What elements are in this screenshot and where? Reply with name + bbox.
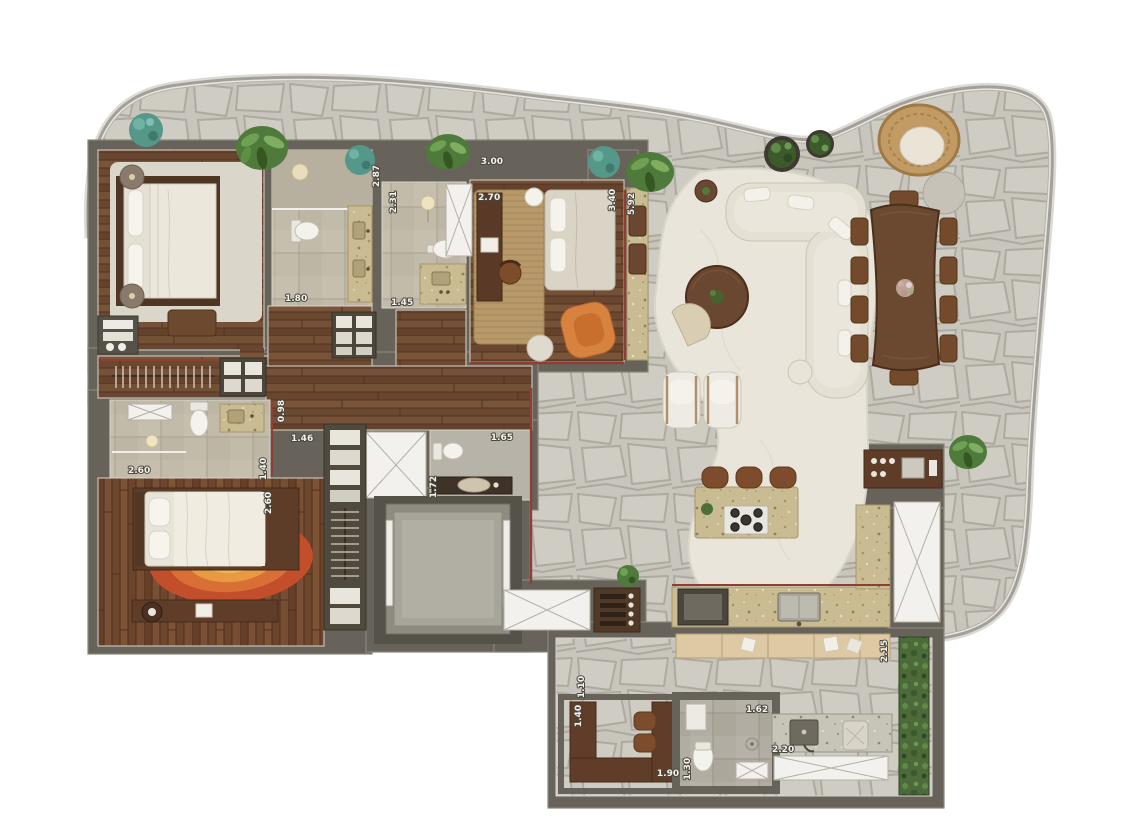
stone-sink-counter <box>432 477 512 494</box>
potted-plant <box>236 126 288 170</box>
double-sink <box>778 593 820 626</box>
pillow <box>128 244 143 290</box>
dim-suite2-bath-w: 2.60 <box>128 466 150 476</box>
coffee-cabinet <box>864 450 942 488</box>
dim-laundry-w: 2.20 <box>772 745 794 755</box>
folded-towel <box>823 636 839 652</box>
dim-living-d: 5.92 <box>627 193 637 215</box>
potted-plant <box>345 145 375 175</box>
floor-plan-stage: 3.00 1.80 2.87 2.31 1.45 2.70 3.40 5.92 … <box>0 0 1132 834</box>
dim-suite2-d: 2.60 <box>264 492 274 514</box>
dim-suite2-bath-d: 1.40 <box>259 458 269 480</box>
potted-plant <box>764 136 800 172</box>
potted-plant <box>806 130 834 158</box>
bar-stools <box>702 467 796 488</box>
hall-cabinet <box>366 432 426 498</box>
wine-rack <box>594 588 640 632</box>
elevator <box>374 496 522 644</box>
daybed <box>545 190 615 290</box>
round-stone-table <box>923 172 965 214</box>
service-upper-cabinets <box>676 634 890 658</box>
toilet <box>693 742 713 771</box>
round-pouf <box>527 335 553 361</box>
dim-den-d: 3.40 <box>608 189 618 211</box>
toilet <box>433 443 463 460</box>
elevator-door-rail <box>386 520 393 606</box>
single-bed <box>133 488 299 570</box>
potted-plant <box>426 134 470 170</box>
potted-plant <box>588 146 620 178</box>
folded-towel <box>740 637 756 653</box>
dim-den-w: 2.70 <box>478 193 500 203</box>
lounge-chair <box>704 372 741 428</box>
pendant-light <box>146 435 158 447</box>
shoe-cubbies <box>332 312 376 358</box>
foot-bench <box>168 310 216 336</box>
pillow <box>838 280 851 306</box>
floor-lamp <box>525 188 543 206</box>
skylight-panel <box>128 404 172 420</box>
toilet <box>190 402 208 436</box>
pillow <box>743 187 770 203</box>
stool <box>634 734 656 752</box>
pillow <box>128 190 143 236</box>
dim-powder-d: 1.72 <box>429 476 439 498</box>
dim-hall-niche: 0.98 <box>277 400 287 422</box>
washer-dryer-panel <box>774 756 888 780</box>
pendant-light <box>421 196 435 210</box>
wall-shelf <box>686 704 706 730</box>
dim-green-wall: 2.15 <box>880 640 890 662</box>
shower-light <box>292 164 308 180</box>
dim-master-bath-d: 2.87 <box>372 165 382 187</box>
vanity-counter <box>348 206 372 302</box>
shaft-room <box>504 588 640 632</box>
dim-office-nook-w: 1.90 <box>657 769 679 779</box>
desk-chair <box>499 261 521 284</box>
suite2-desk <box>132 600 278 622</box>
vanity-counter <box>220 404 264 432</box>
pillow <box>149 498 170 526</box>
dim-bath2-w: 1.45 <box>391 298 413 308</box>
shelf-panel <box>736 762 768 779</box>
kitchen-island <box>695 487 798 538</box>
desk <box>477 193 502 301</box>
hall-floor <box>266 366 532 430</box>
stool <box>634 712 656 730</box>
vertical-garden-wall <box>899 637 929 795</box>
dim-master-bath-w: 1.80 <box>285 294 307 304</box>
plant-side-table <box>695 180 717 202</box>
dim-powder-w: 1.65 <box>491 433 513 443</box>
hanging-rattan-chair <box>879 105 959 175</box>
potted-plant <box>617 565 639 587</box>
dim-service-bath-d: 1.30 <box>683 758 693 780</box>
potted-plant <box>129 113 163 147</box>
dim-office-nook-d: 1.40 <box>574 705 584 727</box>
shoe-shelf <box>220 358 266 396</box>
dim-master-bedroom: 3.00 <box>481 157 503 167</box>
side-shelf <box>98 316 138 354</box>
pillow <box>149 531 170 559</box>
tall-cabinet <box>446 184 472 256</box>
dim-hall-w: 1.46 <box>291 434 313 444</box>
suite2-wardrobe <box>324 424 366 630</box>
dim-bath2-d: 2.31 <box>389 191 399 213</box>
potted-plant <box>949 435 987 469</box>
pillow <box>838 330 851 356</box>
dim-service-bath-w: 1.62 <box>746 705 768 715</box>
herb-pot <box>701 503 713 515</box>
lounge-chair <box>663 372 700 428</box>
vanity-counter <box>420 264 466 304</box>
floor-plan-rendering: 3.00 1.80 2.87 2.31 1.45 2.70 3.40 5.92 … <box>0 0 1132 834</box>
flower-centerpiece <box>896 279 914 297</box>
espresso-machine <box>902 458 924 478</box>
ball-ottoman <box>788 360 812 384</box>
kitchen-shaft <box>894 502 940 622</box>
dim-service-hall: 1.10 <box>577 676 587 698</box>
bath2-lobby-floor <box>396 310 466 366</box>
